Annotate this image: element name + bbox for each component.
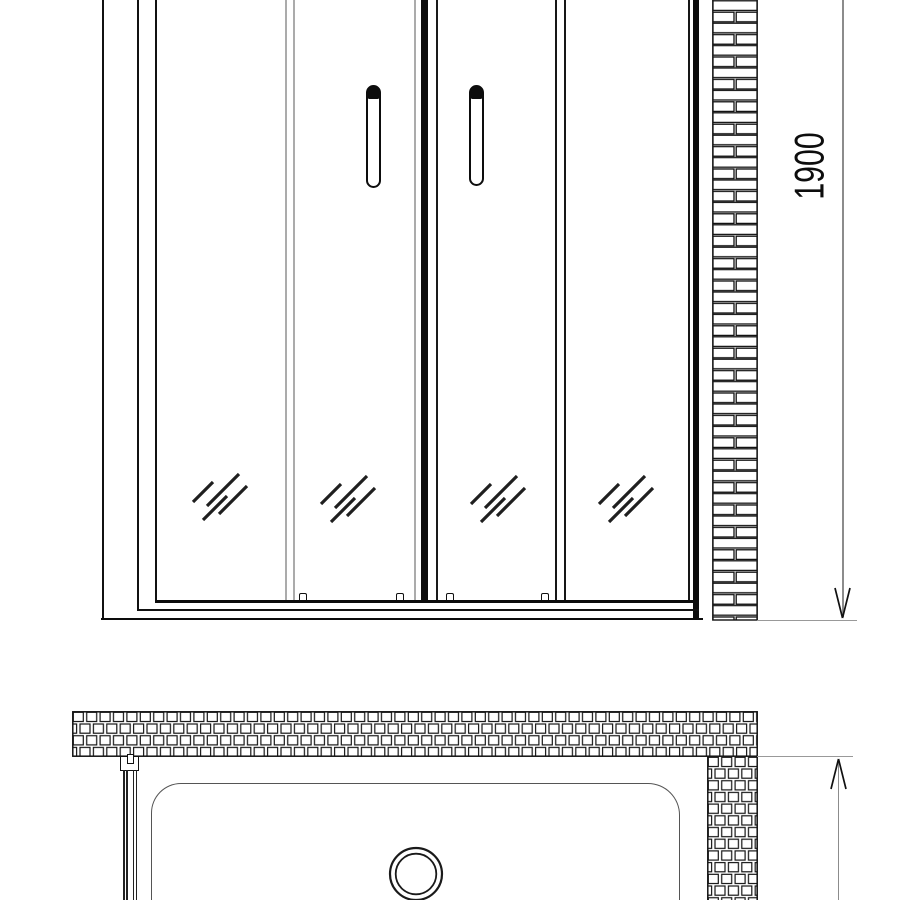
brick-wall-section <box>712 0 758 621</box>
height-dimension-arrow-icon <box>834 586 851 620</box>
glass-hatch-icon <box>596 467 660 531</box>
plan-view <box>0 640 900 900</box>
center-stile-black-bar <box>421 0 428 602</box>
center-stile-thin-line <box>436 0 438 602</box>
drain-outlet-icon <box>388 846 444 900</box>
wall-profile-notch <box>127 754 134 764</box>
glass-edge-line <box>136 770 137 900</box>
height-dimension-label: 1900 <box>776 122 844 210</box>
glass-edge-line <box>126 770 127 900</box>
left-frame-inner-line <box>155 0 157 602</box>
door-handle-right <box>469 85 484 186</box>
door-handle-right-cap <box>470 86 483 99</box>
panel-divider-left-b <box>293 0 295 601</box>
glass-hatch-icon <box>318 467 382 531</box>
left-frame-mid-line <box>137 0 139 611</box>
floor-line <box>757 620 857 621</box>
door-roller <box>396 593 404 600</box>
glass-edge-line <box>123 770 125 900</box>
door-roller <box>541 593 549 600</box>
door-handle-left <box>366 85 381 188</box>
right-frame-inner-line <box>688 0 690 602</box>
glass-hatch-icon <box>190 465 254 529</box>
panel-divider-right-a <box>555 0 557 601</box>
panel-divider-right-b <box>564 0 566 601</box>
bottom-rail-top-line <box>155 600 693 603</box>
tiled-wall-top <box>72 711 758 757</box>
glass-edge-line <box>133 770 135 900</box>
panel-divider-left-a <box>285 0 287 601</box>
front-elevation-view: 1900 <box>0 0 900 640</box>
left-frame-outer-line <box>102 0 104 620</box>
door-roller <box>299 593 307 600</box>
height-dimension-value: 1900 <box>786 132 834 199</box>
height-dimension-line <box>842 0 844 617</box>
door-handle-left-cap <box>367 86 380 99</box>
door-roller <box>446 593 454 600</box>
bottom-rail-mid-line <box>137 609 699 611</box>
tiled-wall-right <box>707 756 758 900</box>
glass-hatch-icon <box>468 467 532 531</box>
right-frame-outer-bar <box>693 0 699 620</box>
depth-dimension-arrow-icon <box>830 757 847 791</box>
technical-drawing-canvas: 1900 <box>0 0 900 900</box>
bottom-rail-base-line <box>101 618 703 620</box>
center-stile-gray-line <box>414 0 416 602</box>
